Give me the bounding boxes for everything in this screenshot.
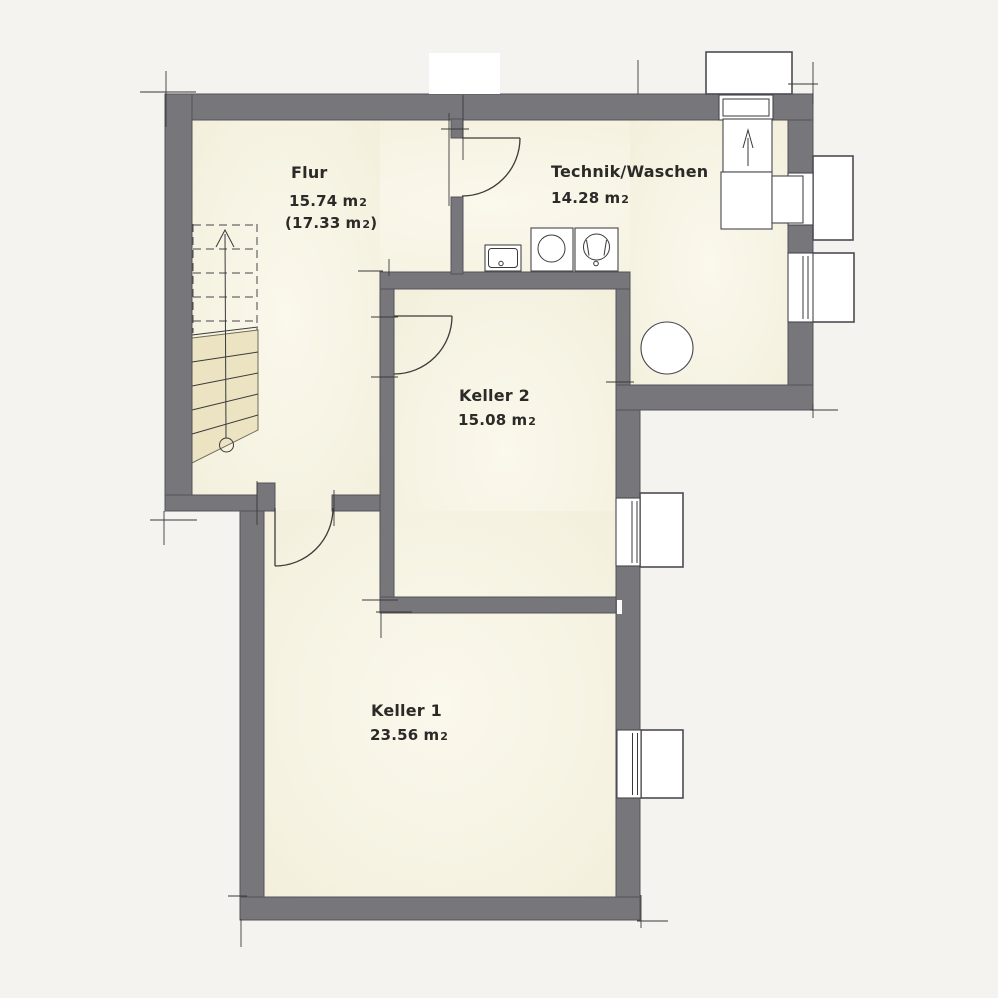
floor-plan-page: Flur 15.74m2 (17.33m2) Technik/Waschen 1… (0, 0, 998, 998)
wall-keller2-keller1 (380, 597, 616, 613)
wall-keller2-left (380, 272, 394, 613)
room-area-keller2-label: 15.08m2 (458, 411, 536, 429)
room-label-keller1: Keller 1 (371, 701, 442, 720)
wall-door-pier (257, 483, 275, 511)
boiler-tank (641, 322, 693, 374)
dryer (575, 228, 618, 271)
room-label-flur: Flur (291, 163, 328, 182)
washing-machine (531, 228, 573, 271)
wall-flur-right-lower (451, 197, 463, 274)
wall-exterior-left-upper (165, 94, 192, 511)
room-area-keller1-label: 23.56m2 (370, 726, 448, 744)
floor-plan-drawing (0, 0, 998, 998)
room-area-flur-alt-label: (17.33m2) (285, 214, 377, 232)
light-well-top (706, 52, 792, 94)
window-keller2 (616, 498, 640, 566)
wall-technik-keller2 (616, 289, 630, 389)
room-area-flur (192, 120, 380, 511)
wall-exterior-east (616, 410, 640, 920)
window-keller1 (617, 730, 641, 798)
window-top (719, 95, 773, 120)
wall-joint-gap (617, 600, 622, 614)
wall-flur-bottom-left (165, 495, 257, 511)
wall-flur-right-upper (451, 119, 463, 138)
wall-exterior-left-lower (240, 511, 264, 920)
sink (485, 245, 521, 271)
light-well-right-lower (812, 253, 854, 322)
room-label-keller2: Keller 2 (459, 386, 530, 405)
light-well-keller1 (641, 730, 683, 798)
room-area-technik-label: 14.28m2 (551, 189, 629, 207)
light-well-right-upper (813, 156, 853, 240)
wall-technik-bottom (616, 385, 813, 410)
room-interiors (192, 120, 788, 897)
window-right-lower (788, 253, 813, 322)
room-area-flur-label: 15.74m2 (289, 192, 367, 210)
room-label-technik: Technik/Waschen (551, 162, 708, 181)
wall-exterior-bottom (240, 897, 640, 920)
chimney-block (429, 53, 500, 94)
wall-keller2-top (380, 272, 630, 289)
wall-exterior-top (165, 94, 813, 120)
light-well-keller2 (640, 493, 683, 567)
